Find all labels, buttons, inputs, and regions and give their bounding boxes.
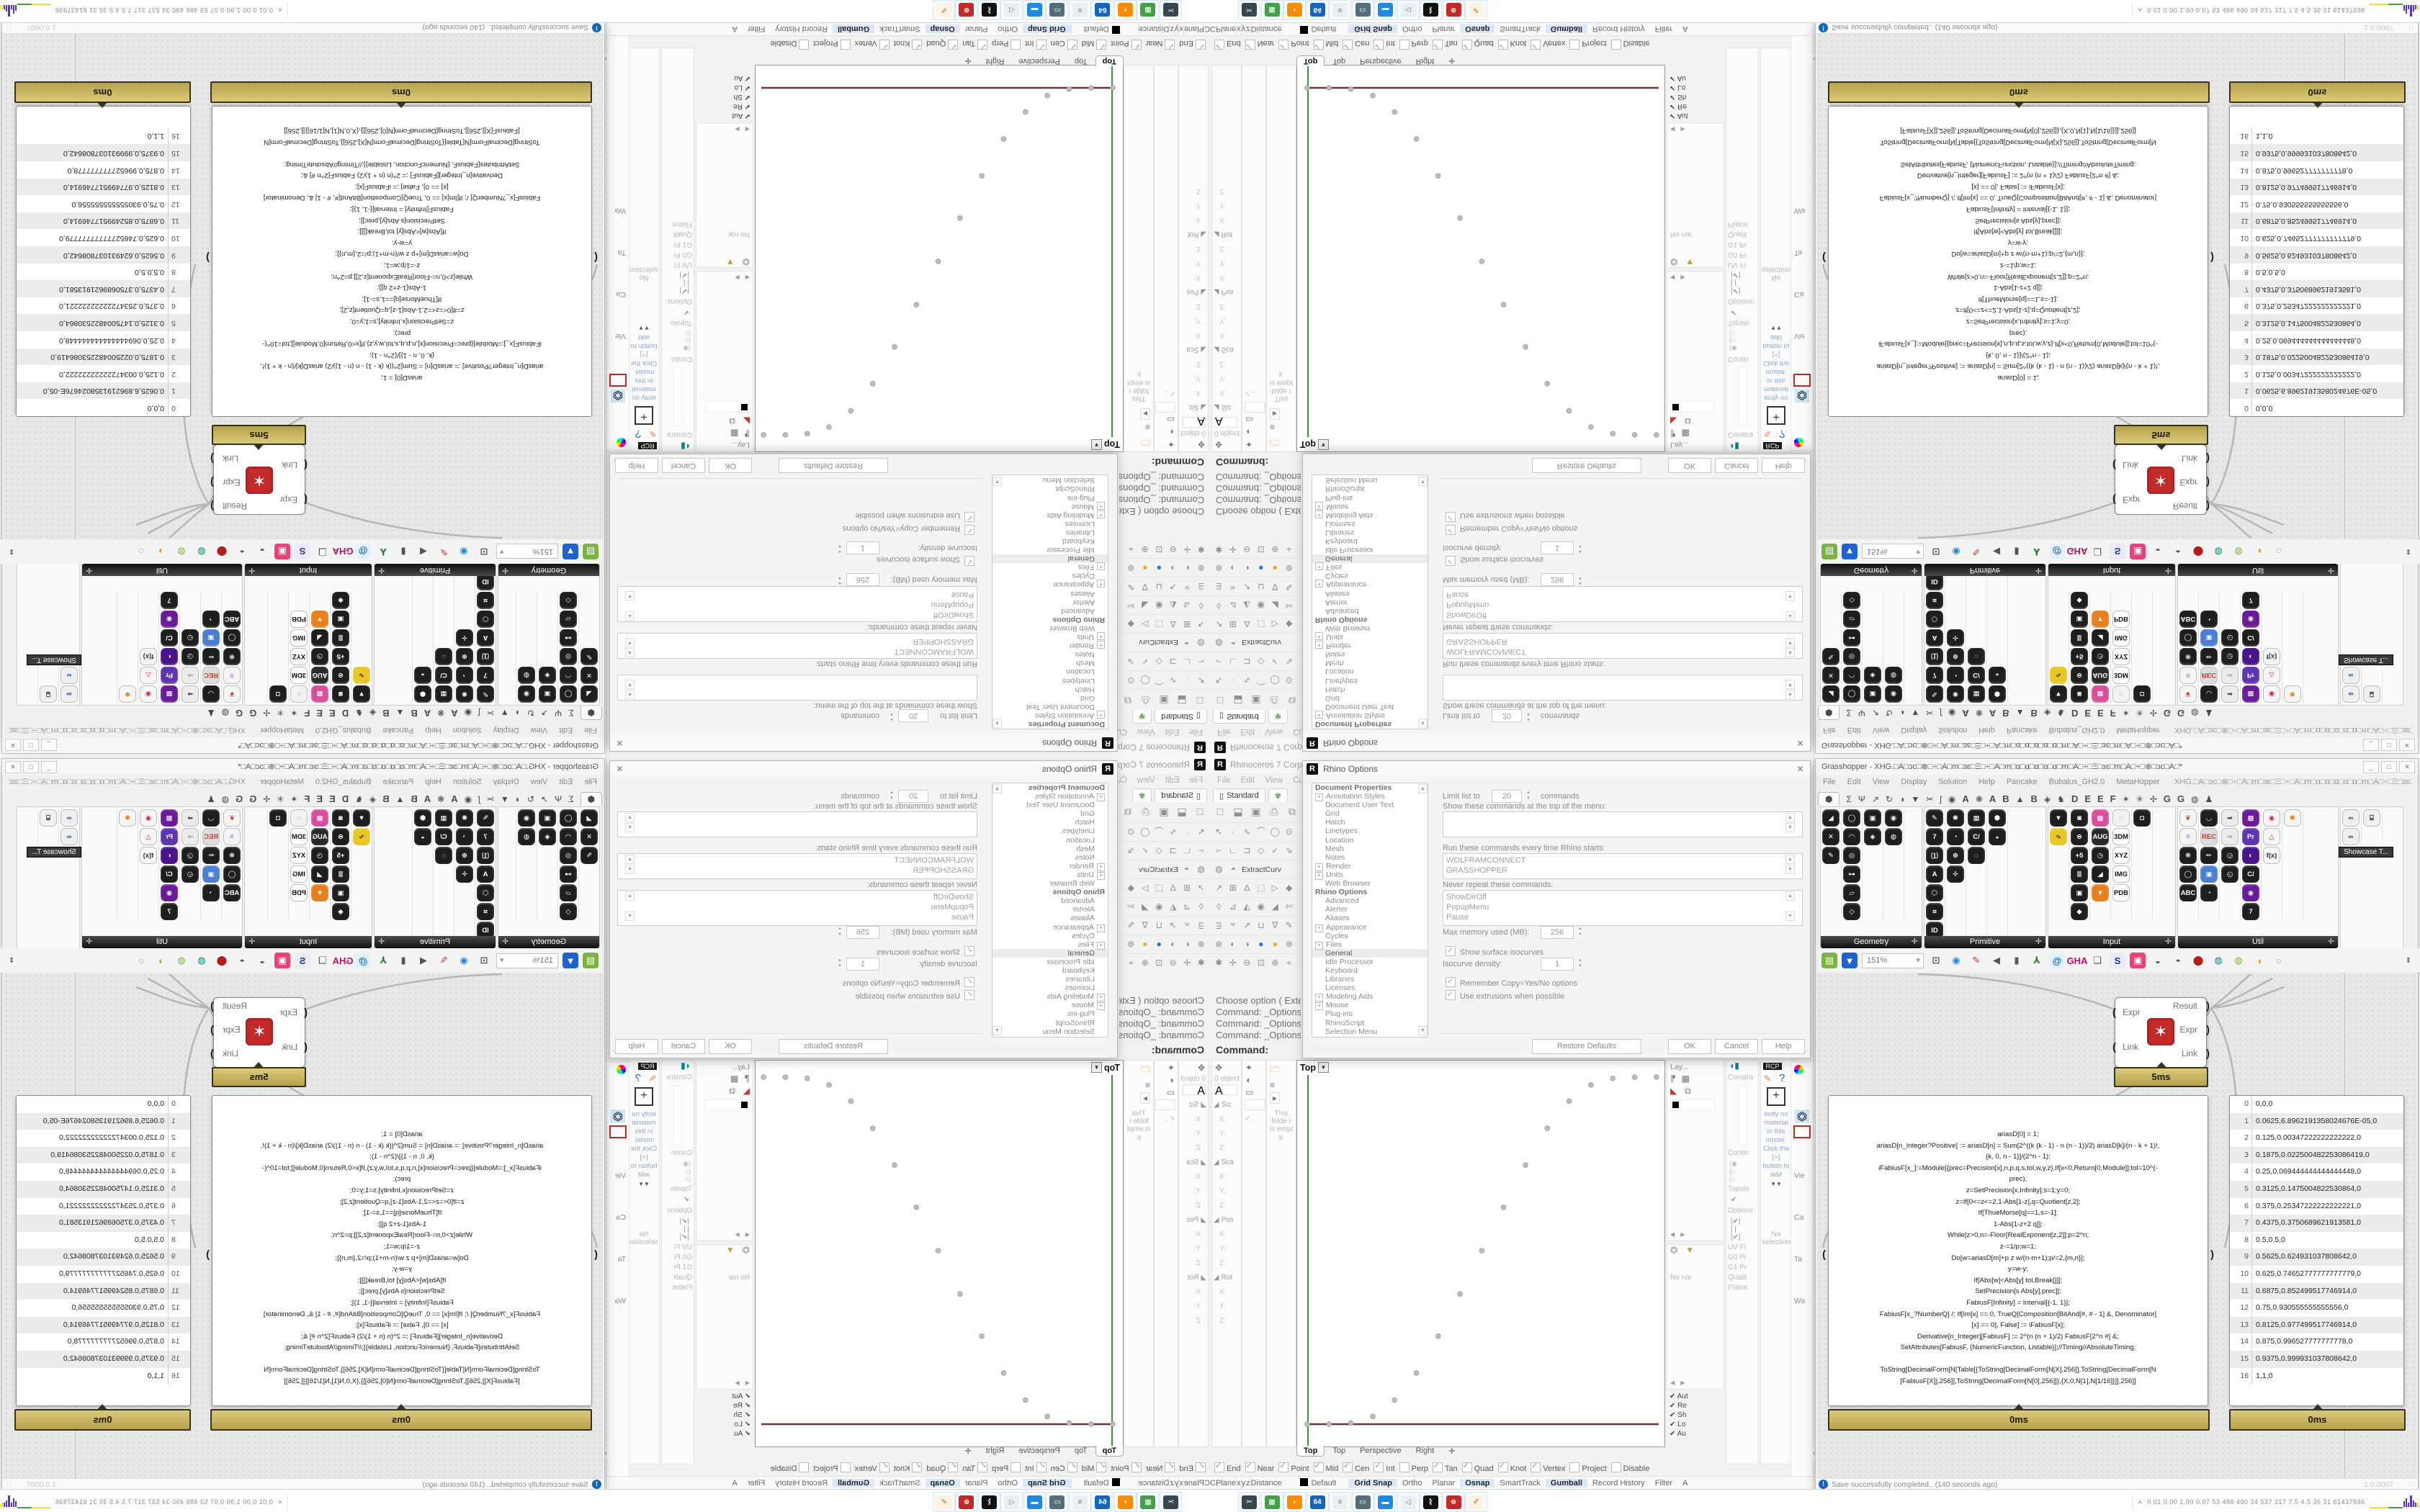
rhino-menu-item[interactable]: View (1265, 776, 1283, 785)
gh-component-icon[interactable]: 3DM (2112, 828, 2130, 845)
gh-tab[interactable]: ◉ (465, 793, 472, 806)
rhino-tool-icon[interactable]: ⬚ (1153, 618, 1165, 630)
gh-component-icon[interactable]: ◯ (2179, 629, 2197, 647)
gh-tab[interactable]: G (2164, 793, 2171, 806)
gh-component-icon[interactable]: ✕ (1822, 828, 1839, 845)
gh-tab[interactable]: E (329, 793, 336, 806)
cluster-icon[interactable]: @ (2049, 953, 2065, 968)
dock-side-tab[interactable]: Vie (607, 332, 626, 341)
gh-component-icon[interactable]: 3DM (290, 667, 308, 684)
gh-component-icon[interactable]: ❦ (223, 809, 241, 827)
tree-item[interactable]: Aliases (1312, 590, 1428, 598)
view-icon[interactable]: ◉ (456, 953, 472, 968)
gh-component-icon[interactable]: ➡ (181, 685, 199, 703)
taskbar-console-icon[interactable]: ▦ (1137, 0, 1160, 20)
taskbar-display-icon[interactable]: ▬ (1374, 1492, 1397, 1512)
gh-component-icon[interactable]: ◇ (1843, 592, 1860, 609)
gh-menu-item[interactable]: Edit (559, 778, 573, 786)
statusbar-grip[interactable]: ∷ (2408, 1480, 2414, 1489)
toolbar-tab-standard[interactable]: ▯ Standard (1213, 710, 1265, 724)
code-panel[interactable]: ( ) ariasD[0] = 1;ariasD[n_Integer?Posit… (1828, 1095, 2208, 1406)
gh-component-icon[interactable]: +5 (332, 847, 349, 864)
boxedit-section-header[interactable]: ◢ Pos (1179, 1216, 1206, 1224)
preview-orange-icon[interactable]: ◑ (153, 953, 169, 968)
dock-checkbox[interactable]: ✔ Sh (1670, 1411, 1723, 1419)
dock-checkbox[interactable]: ✔ Lo (1670, 1421, 1723, 1428)
gh-component-icon[interactable]: ◇ (560, 592, 577, 609)
data-panel[interactable]: ( ) 00,0,010.0625,6.8962191358024676E-05… (2229, 1095, 2404, 1406)
layers-nav-arrows[interactable]: ◀ ▶ (732, 274, 750, 281)
rhino-tool-icon[interactable]: ⊔ (1255, 919, 1268, 932)
restore-defaults-button[interactable]: Restore Defaults (1532, 458, 1641, 473)
resize-grip[interactable]: ⟋ (612, 456, 617, 464)
toolbar-tab-2[interactable]: ✾ (1132, 710, 1152, 724)
rhino-tool-icon[interactable]: ◢ (1139, 599, 1152, 611)
gh-component-icon[interactable]: ◔ (202, 611, 220, 628)
gh-component-icon[interactable]: REC (2200, 828, 2218, 845)
wire-icon[interactable]: ◓ (234, 544, 250, 559)
display-panel-icon[interactable]: ▭ (1157, 415, 1175, 425)
gh-component-icon[interactable]: ◉ (518, 685, 535, 703)
osnap-toggle[interactable]: Point (1278, 40, 1309, 50)
rhino-tool-icon[interactable]: ∟ (1181, 845, 1193, 857)
gh-window-button[interactable]: _ (41, 761, 57, 773)
gh-tab[interactable]: A (451, 706, 457, 719)
gh-component-icon[interactable]: △ (140, 828, 157, 845)
gh-tab-active[interactable]: ⬢ (581, 792, 602, 806)
component-input-link[interactable]: Link (2123, 460, 2138, 470)
status-toggle[interactable]: A (1677, 24, 1693, 33)
gh-component-icon[interactable]: ✱ (119, 685, 136, 703)
run-box-up[interactable]: ▲ (1785, 855, 1795, 864)
gh-component-icon[interactable]: ◒ (1989, 667, 2006, 684)
rhino-toolbar-icon[interactable]: ▣ (1249, 693, 1263, 708)
tree-item[interactable]: General (992, 554, 1108, 563)
gh-tab[interactable]: F (304, 706, 310, 719)
run-commands-box[interactable]: WOLFRAMCONNECTGRASSHOPPER (1443, 633, 1803, 659)
gh-titlebar[interactable]: Grasshopper - XHG.□A□ɔc□⊗□÷□A□m□ɜɛ□Ξ□÷□A… (2, 737, 604, 753)
gh-tab[interactable]: F (2110, 706, 2116, 719)
display-panel-check[interactable]: ✓ , (1155, 1115, 1175, 1122)
rhino-tool-icon[interactable]: ◆ (1125, 882, 1137, 894)
gh-tab[interactable]: E (2084, 706, 2091, 719)
rhino-tool-icon[interactable]: ◇ (1255, 845, 1268, 857)
floppy-icon[interactable]: ▼ (726, 1245, 735, 1255)
taskbar-volume-icon[interactable]: ◁ (1001, 1492, 1023, 1512)
gh-component-icon[interactable]: ✏ (202, 648, 220, 665)
gh-component-icon[interactable]: +5 (2071, 847, 2088, 864)
viewport-tab[interactable]: Perspective (1012, 1446, 1066, 1456)
rhino-toolbar-icon[interactable]: ⎙ (1267, 693, 1281, 708)
tree-item[interactable]: Libraries (992, 528, 1108, 537)
gh-component-icon[interactable]: ⚛ (223, 667, 241, 684)
save-icon[interactable]: ▼ (1842, 953, 1857, 968)
paint-icon[interactable]: ◣ (1670, 416, 1677, 426)
never-repeat-box[interactable]: ShowDirOffPopupMenuPause (1443, 586, 1803, 622)
rhino-tool-icon[interactable]: ◯ (1269, 826, 1281, 838)
rhino-toolbar-icon[interactable]: ⎙ (1139, 693, 1153, 708)
osnap-toggle[interactable]: Vertex (1531, 1462, 1565, 1473)
gh-component-icon[interactable]: AUG (2092, 667, 2109, 684)
dock-side-tab[interactable]: Vie (607, 1171, 626, 1180)
tree-item[interactable]: Grid (992, 694, 1108, 703)
finder-icon[interactable]: S (2110, 953, 2125, 968)
component-input-expr[interactable]: Expr (2123, 495, 2141, 505)
boxedit-section-header[interactable]: ◢ Sca (1179, 346, 1206, 354)
camera-tab-icon[interactable]: ⏣ (611, 1110, 625, 1122)
rhino-tool-icon[interactable]: ⊛ (1125, 562, 1137, 574)
rhino-tool-icon[interactable]: ∟ (1181, 655, 1193, 667)
rhino-tool-icon[interactable]: ∆ (1168, 882, 1180, 894)
gh-component-icon[interactable]: ABC (223, 884, 241, 901)
gh-component-icon[interactable]: 7 (1926, 667, 1943, 684)
gh-tab[interactable]: ♟ (207, 706, 215, 719)
gh-tab[interactable]: ✢ (263, 706, 270, 719)
extrusions-checkbox[interactable]: Use extrusions when possible (1446, 511, 1565, 522)
code-panel[interactable]: ( ) ariasD[0] = 1;ariasD[n_Integer?Posit… (212, 1095, 592, 1406)
osnap-toggle[interactable]: Knot (894, 1462, 923, 1473)
folder-icon[interactable]: 🗁 (1270, 434, 1293, 449)
rhino-toolbar-icon[interactable]: □ (1193, 693, 1207, 708)
boxedit-section-header[interactable]: ◢ Rot (1179, 1274, 1206, 1282)
status-cell[interactable]: CPlane (1183, 22, 1210, 35)
status-toggle[interactable]: Record History (770, 1479, 833, 1488)
check-list[interactable]: |✔|| ||✔| (666, 1218, 689, 1241)
rhino-tool-icon[interactable]: ◍ (1195, 863, 1207, 876)
palette-expand-icon[interactable]: ✛ (2328, 564, 2334, 576)
preview-icon[interactable]: ▮ (395, 953, 411, 968)
tree-item[interactable]: Linetypes (992, 827, 1108, 835)
isocurves-checkbox[interactable]: Show surface isocurves (877, 555, 974, 566)
gh-component-icon[interactable]: ✕ (581, 828, 598, 845)
gh-tab[interactable]: E (2097, 793, 2104, 806)
tree-item[interactable]: Idle Processor (1312, 546, 1428, 554)
palette-expand-icon[interactable]: ✛ (86, 564, 92, 576)
rhino-tool-icon[interactable]: ∟ (1227, 845, 1240, 857)
rhino-toolbar-icon[interactable]: ⧉ (1121, 693, 1135, 708)
gh-component-icon[interactable]: ◎ (1843, 648, 1860, 665)
palette-expand-icon[interactable]: ✛ (2165, 564, 2172, 576)
gh-tab[interactable]: Σ (568, 793, 573, 806)
tree-item[interactable]: Document User Text (1312, 703, 1428, 711)
view-icon[interactable]: ◉ (1948, 953, 1964, 968)
dock-side-tab[interactable]: Ca (607, 290, 626, 299)
toolbar-tab-standard[interactable]: ▯ Standard (1213, 788, 1265, 802)
camera-icon[interactable]: ⏣ (1670, 1245, 1677, 1255)
gh-tab[interactable]: ✳ (2136, 793, 2143, 806)
osnap-toggle[interactable]: Vertex (1531, 40, 1565, 50)
zoom-extents-icon[interactable]: ⊡ (1928, 544, 1944, 559)
gh-component-icon[interactable]: 7 (477, 667, 494, 684)
gh-tab[interactable]: B (2002, 706, 2009, 719)
statusbar-grip[interactable]: ∷ (6, 24, 12, 32)
mathematica-component[interactable]: ✶ ( Expr ( Link Result ) Expr ) Link ) (2115, 444, 2207, 515)
save-icon[interactable]: ▼ (1842, 544, 1857, 559)
tree-item[interactable]: Web Browser (992, 879, 1108, 888)
tree-item[interactable]: Plug-ins (1312, 493, 1428, 502)
taskbar-pc-icon[interactable]: ▭ (1047, 0, 1069, 20)
gh-component-icon[interactable]: ⌸ (2363, 809, 2380, 827)
rhino-tool-icon[interactable]: ◊ (1213, 599, 1225, 611)
gh-window-button[interactable]: _ (41, 739, 57, 751)
gh-tab[interactable]: B (382, 793, 389, 806)
gh-titlebar[interactable]: Grasshopper - XHG.□A□ɔc□⊗□÷□A□m□ɜɛ□Ξ□÷□A… (1816, 759, 2418, 775)
gh-component-icon[interactable]: ▩ (161, 809, 178, 827)
status-toggle[interactable]: Planar (1427, 24, 1460, 33)
rhino-tool-icon[interactable]: ◉ (1255, 901, 1268, 913)
toolbar-grip-icon[interactable]: ⇕ (2401, 544, 2416, 559)
rhino-tool-icon[interactable]: ◍ (1195, 636, 1207, 649)
open-icon[interactable]: ▤ (583, 544, 599, 559)
show-box-down[interactable]: ▼ (1785, 680, 1795, 689)
display-panel-check[interactable]: ✓ , (1155, 390, 1175, 397)
gh-component-icon[interactable]: Pr (161, 828, 178, 845)
taskbar-save64-icon[interactable]: 64 (1092, 0, 1114, 20)
gh-component-icon[interactable]: ✱ (2284, 809, 2301, 827)
status-toggle[interactable]: Planar (1427, 1479, 1460, 1488)
rhino-tool-icon[interactable]: ↗ (1241, 580, 1253, 593)
preview-teal-icon[interactable]: ◍ (194, 953, 210, 968)
gh-component-icon[interactable]: ▼ (353, 809, 370, 827)
gh-component-icon[interactable]: ➡ (181, 809, 199, 827)
boxedit-section-header[interactable]: ◢ Rot (1179, 230, 1206, 238)
finder-icon[interactable]: S (2110, 544, 2125, 559)
tree-item[interactable]: Alerter (992, 905, 1108, 914)
rhino-tool-icon[interactable]: ◢ (1269, 901, 1281, 913)
gh-component-icon[interactable]: ◎ (560, 648, 577, 665)
rhino-tool-icon[interactable]: ⊞ (1227, 618, 1240, 630)
gh-component-icon[interactable]: ◌ (2112, 685, 2130, 703)
rhino-tool-icon[interactable]: ◯ (1139, 674, 1152, 686)
gh-tab[interactable]: Σ (1846, 706, 1851, 719)
gh-component-icon[interactable]: ◡ (202, 685, 220, 703)
rhino-tool-icon[interactable]: ⊕ (1269, 957, 1281, 969)
gh-tab[interactable]: ◍ (2191, 793, 2198, 806)
gh-component-icon[interactable]: ✺ (1947, 685, 1964, 703)
osnap-toggle[interactable]: Perp (992, 40, 1021, 50)
rhino-tool-icon[interactable]: ↗ (1196, 882, 1208, 894)
dock-side-tab[interactable]: Ca (1794, 290, 1813, 299)
gh-component-icon[interactable]: ❦ (2179, 809, 2197, 827)
code-panel[interactable]: ( ) ariasD[0] = 1;ariasD[n_Integer?Posit… (1828, 106, 2208, 417)
gh-tab[interactable]: Ψ (1858, 706, 1865, 719)
rhino-tool-icon[interactable]: ✱ (1196, 543, 1208, 555)
component-output-result[interactable]: Result (223, 501, 247, 511)
palette-group-label[interactable]: Geometry✛ (1821, 936, 1922, 948)
gh-component-icon[interactable]: ⊶ (560, 865, 577, 883)
tree-item[interactable]: Mesh (1312, 659, 1428, 667)
gh-tab[interactable]: D (342, 793, 349, 806)
tree-item[interactable]: +Annotation Styles (1312, 792, 1428, 801)
palette-group-label[interactable]: Geometry✛ (498, 936, 599, 948)
view-icon[interactable]: ◉ (1948, 544, 1964, 559)
gh-component-icon[interactable]: ⌸ (40, 809, 57, 827)
display-panel-field[interactable] (1245, 402, 1265, 413)
taskbar-pc-icon[interactable]: ▭ (1352, 1492, 1374, 1512)
gh-tab[interactable]: ◈ (369, 793, 376, 806)
gh-component-icon[interactable]: ∿ (353, 828, 370, 845)
palette-group-label[interactable]: Primitive✛ (1924, 936, 2045, 948)
gh-component-icon[interactable]: ◉ (2263, 685, 2280, 703)
gh-component-icon[interactable]: ▣ (202, 629, 220, 647)
gh-tab[interactable]: ◑ (516, 706, 521, 719)
gh-tab[interactable]: ✂ (1926, 706, 1933, 719)
layers-panel-title[interactable]: Lay... (1670, 441, 1724, 449)
gh-tab[interactable]: ▼ (1911, 706, 1919, 719)
dock-checkbox[interactable]: ✔ Au (697, 74, 750, 82)
save-icon[interactable]: ▼ (563, 544, 578, 559)
status-toggle[interactable]: Planar (960, 1479, 993, 1488)
preview-teal-icon[interactable]: ◍ (2210, 953, 2226, 968)
dock-side-tab[interactable]: Vie (1794, 332, 1813, 341)
gh-component-icon[interactable]: ✎ (581, 847, 598, 864)
rhino-tool-icon[interactable]: ⊡ (1255, 957, 1268, 969)
rhino-tool-icon[interactable]: ✛ (1227, 543, 1240, 555)
tree-item[interactable]: Location (1312, 836, 1428, 845)
gh-component-icon[interactable]: XYZ (2112, 847, 2130, 864)
gh-component-icon[interactable]: ⊜ (2071, 667, 2088, 684)
gh-component-icon[interactable]: ◐ (2242, 648, 2259, 665)
zoom-combo[interactable]: 151% (1862, 953, 1924, 968)
gh-menu-item[interactable]: Display (493, 778, 519, 786)
component-input-expr[interactable]: Expr (279, 495, 297, 505)
gh-component-icon[interactable]: ◉ (2242, 611, 2259, 628)
gh-component-icon[interactable]: ◙ (2071, 685, 2088, 703)
gh-tab[interactable]: ❋ (437, 706, 444, 719)
tree-item[interactable]: Grid (992, 809, 1108, 818)
viewport-label[interactable]: Top ▼ (1091, 439, 1120, 450)
command-prompt[interactable]: Command: (1216, 1044, 1301, 1056)
rhino-tool-icon[interactable]: ⊖ (1241, 957, 1253, 969)
gh-component-icon[interactable]: ⌗ (1926, 592, 1943, 609)
gh-component-icon[interactable]: ✛ (456, 629, 473, 647)
status-toggle[interactable]: Record History (770, 24, 833, 33)
rhino-tool-icon[interactable]: ◭ (1241, 901, 1253, 913)
tree-item[interactable]: Alerter (992, 598, 1108, 607)
show-box-down[interactable]: ▼ (1785, 823, 1795, 832)
rcp-badge[interactable]: RCP (638, 1063, 657, 1070)
component-output-result[interactable]: Result (2173, 1001, 2197, 1011)
gh-component-icon[interactable]: ▣ (1864, 685, 1881, 703)
pen-icon[interactable]: ✎ (649, 1074, 656, 1084)
display-panel-field[interactable] (1155, 402, 1175, 413)
gh-component-icon[interactable]: ◈ (1864, 667, 1881, 684)
status-toggle[interactable]: A (727, 1479, 743, 1488)
gh-tab[interactable]: Ψ (1858, 793, 1865, 806)
gh-component-icon[interactable]: ✛ (1947, 865, 1964, 883)
gh-component-icon[interactable]: ⌗ (1926, 903, 1943, 920)
gh-tab[interactable]: Ψ (555, 793, 562, 806)
component-input-link[interactable]: Link (2123, 1042, 2138, 1052)
tree-item[interactable]: +Render (992, 862, 1108, 870)
gh-menu-item[interactable]: Help (1978, 778, 1995, 786)
tree-item[interactable]: Selection Menu (1312, 476, 1428, 485)
memory-field[interactable]: 256 (1541, 573, 1574, 586)
gh-component-icon[interactable]: 7 (161, 592, 178, 609)
lasso-icon[interactable]: ◌ (2271, 953, 2287, 968)
rhino-tool-icon[interactable]: ∿ (1168, 674, 1180, 686)
gh-tab[interactable]: ▼ (501, 793, 509, 806)
gh-menu-item[interactable]: Bubalus_GH2.0 (315, 726, 372, 734)
boxedit-mode-field[interactable]: A (1183, 1084, 1206, 1095)
status-toggle[interactable]: Gumball (1546, 24, 1587, 33)
rhino-tool-icon[interactable]: ◓ (1180, 636, 1193, 649)
dots-label[interactable]: ▼▼ (1761, 325, 1791, 331)
gh-component-icon[interactable]: ✕ (581, 667, 598, 684)
gh-tab[interactable]: ◍ (221, 706, 228, 719)
tree-item[interactable]: Linetypes (1312, 676, 1428, 685)
rhino-tool-icon[interactable]: ✄ (1283, 901, 1296, 913)
rhino-tool-icon[interactable]: ∇ (1139, 580, 1152, 593)
gh-component-icon[interactable]: ⚛ (223, 828, 241, 845)
memory-spinner[interactable]: ▲▼ (835, 575, 845, 586)
rhino-tool-icon[interactable]: ∟ (1227, 655, 1240, 667)
gh-component-icon[interactable]: ⬡ (1926, 611, 1943, 628)
osnap-toggle[interactable]: Tan (962, 40, 987, 50)
add-material-button[interactable]: + (635, 1087, 653, 1106)
display-panel-icon[interactable]: ▭ (1245, 1087, 1263, 1097)
shaded-icon[interactable]: ◒ (2150, 953, 2166, 968)
dock-side-tab[interactable]: Ta (1794, 248, 1813, 257)
gh-tab[interactable]: E (316, 793, 323, 806)
gh-tab[interactable]: ◉ (465, 706, 472, 719)
rhino-tool-icon[interactable]: ↖ (1213, 674, 1225, 686)
taskbar-rhino-icon[interactable]: ᚱ (978, 1492, 1000, 1512)
window-icon[interactable]: ❏ (2089, 953, 2105, 968)
rhino-tool-icon[interactable]: ∆ (1241, 882, 1253, 894)
rhino-toolbar-icon[interactable]: ▣ (1157, 693, 1171, 708)
rhino-tool-icon[interactable]: ∇ (1269, 919, 1281, 932)
rhino-tool-icon[interactable]: ⊿ (1227, 599, 1240, 611)
limit-spinner[interactable]: ▲▼ (887, 711, 897, 722)
gh-tab[interactable]: ◑ (1899, 793, 1904, 806)
gh-titlebar[interactable]: Grasshopper - XHG.□A□ɔc□⊗□÷□A□m□ɜɛ□Ξ□÷□A… (2, 759, 604, 775)
display-panel-icon[interactable]: ✦ (1245, 1063, 1263, 1073)
gh-tab[interactable]: ↗ (1872, 706, 1879, 719)
restore-defaults-button[interactable]: Restore Defaults (779, 1039, 888, 1054)
viewport-tab[interactable]: Top (1326, 56, 1352, 66)
rhino-tool-icon[interactable]: ✓ (1269, 655, 1281, 667)
tree-item[interactable]: +Modeling Aids (992, 992, 1108, 1001)
rhino-tool-icon[interactable]: ◯ (1269, 674, 1281, 686)
rhino-tool-icon[interactable]: ⊛ (1283, 562, 1296, 574)
gh-component-icon[interactable]: ◷ (311, 847, 328, 864)
taskbar-save64-icon[interactable]: 64 (1307, 1492, 1329, 1512)
gh-component-icon[interactable]: ◢ (1822, 809, 1839, 827)
rhino-tool-icon[interactable]: ⊙ (1125, 674, 1137, 686)
rhino-tool-icon[interactable]: ⌖ (1125, 957, 1137, 969)
never-repeat-box[interactable]: ShowDirOffPopupMenuPause (617, 586, 977, 622)
window-icon[interactable]: ❏ (315, 953, 331, 968)
color-wheel-icon[interactable] (1794, 1065, 1803, 1074)
osnap-toggle[interactable]: Disable (1611, 40, 1650, 50)
rcp-badge[interactable]: RCP (1763, 442, 1782, 449)
rhino-tool-icon[interactable]: ✛ (1227, 957, 1240, 969)
check-list[interactable]: |✔|| ||✔| (666, 271, 689, 294)
paint-icon[interactable]: ◣ (743, 1086, 750, 1096)
color-wheel-icon[interactable] (617, 438, 626, 447)
gh-component-icon[interactable]: 7 (1926, 828, 1943, 845)
gh-component-icon[interactable]: ⌗ (477, 592, 494, 609)
gh-tab[interactable]: ✶ (290, 793, 297, 806)
rhino-tool-icon[interactable]: ◢ (1269, 599, 1281, 611)
show-box-down[interactable]: ▼ (625, 680, 635, 689)
tree-item[interactable]: General (1312, 949, 1428, 958)
gh-tab[interactable]: Σ (568, 706, 573, 719)
osnap-toggle[interactable]: Int (1025, 40, 1046, 50)
dock-side-tab[interactable]: Wa (1794, 207, 1813, 215)
gh-component-icon[interactable]: ◷ (2092, 847, 2109, 864)
